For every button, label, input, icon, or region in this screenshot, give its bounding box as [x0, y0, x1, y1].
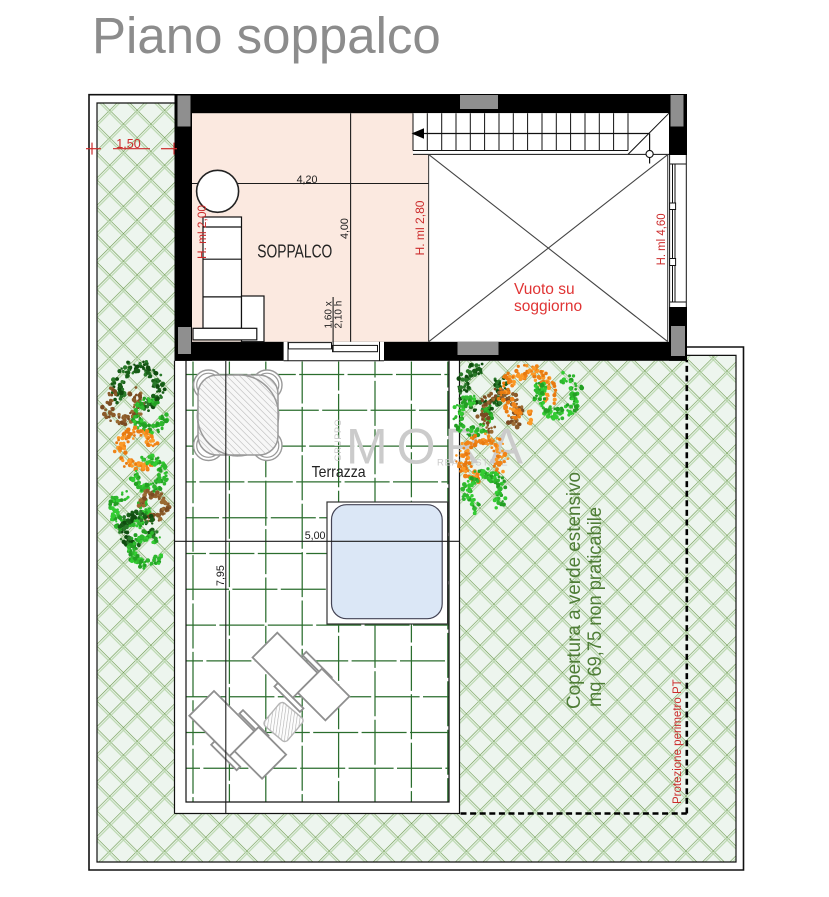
svg-text:H. ml 2,00: H. ml 2,00 [195, 205, 209, 259]
svg-text:Piano soppalco: Piano soppalco [92, 7, 441, 64]
svg-text:SOPPALCO: SOPPALCO [257, 241, 332, 262]
svg-text:H. ml 2,80: H. ml 2,80 [413, 200, 427, 255]
svg-text:4,00: 4,00 [339, 218, 351, 239]
svg-text:Protezione perimetro PT: Protezione perimetro PT [672, 679, 684, 804]
svg-text:soggiorno: soggiorno [514, 298, 582, 315]
svg-text:4,20: 4,20 [297, 174, 318, 186]
svg-text:2,10 h: 2,10 h [334, 301, 345, 329]
svg-text:GRUPPO: GRUPPO [333, 419, 343, 462]
svg-text:Vuoto su: Vuoto su [514, 281, 575, 298]
svg-text:H. ml 4,60: H. ml 4,60 [656, 213, 668, 265]
svg-text:1,50: 1,50 [116, 136, 141, 151]
svg-text:Copertura a verde estensivo: Copertura a verde estensivo [564, 472, 585, 709]
svg-text:mq 69,75 non praticabile: mq 69,75 non praticabile [585, 507, 606, 707]
svg-text:7,95: 7,95 [215, 565, 227, 586]
svg-text:Terrazza: Terrazza [312, 464, 366, 481]
svg-text:5,00: 5,00 [305, 530, 326, 542]
